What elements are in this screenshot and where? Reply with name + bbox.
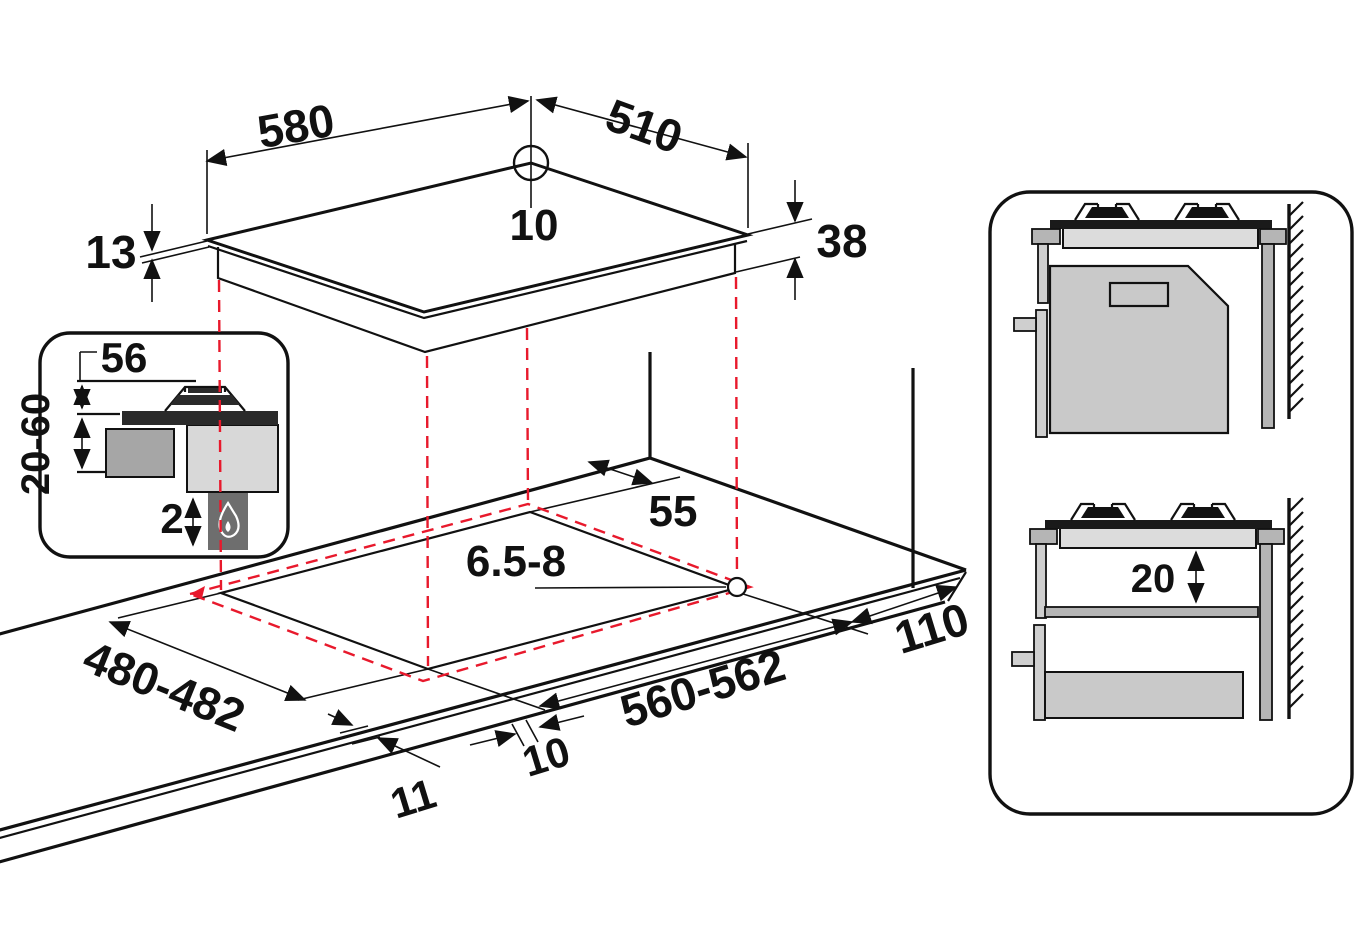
label-cutout-width: 560-562 <box>614 638 791 737</box>
label-grate-height: 56 <box>101 334 148 381</box>
label-corner-hole: 10 <box>510 201 559 250</box>
label-rim-thickness: 13 <box>85 226 136 278</box>
label-front-overhang: 10 <box>517 727 575 786</box>
drawer <box>1045 672 1243 718</box>
label-side-overhang: 11 <box>385 770 441 828</box>
label-body-height: 38 <box>816 215 867 267</box>
label-hob-width: 580 <box>254 94 339 159</box>
label-bottom-clearance: 2 <box>160 495 183 542</box>
label-cutout-depth: 480-482 <box>76 630 252 741</box>
worktop-cross-section <box>106 429 174 477</box>
label-side-clearance: 110 <box>889 592 975 663</box>
shelf <box>1045 607 1258 617</box>
label-worktop-thickness: 20-60 <box>14 393 58 495</box>
label-rear-clearance: 55 <box>649 487 698 536</box>
label-fixing-hole: 6.5-8 <box>466 537 566 586</box>
hob-isometric-view <box>207 163 748 352</box>
hob-body-section <box>187 425 278 492</box>
fixing-hole <box>728 578 746 596</box>
label-hob-depth: 510 <box>599 89 689 164</box>
hob-rim-section <box>122 411 278 425</box>
installation-diagram: 580 510 10 13 38 56 20-60 2 55 6.5-8 480… <box>0 0 1364 951</box>
side-view-shelf: 20 <box>1012 498 1303 720</box>
side-view-panel: 20 <box>990 192 1352 814</box>
oven-vent <box>1110 283 1168 306</box>
diagram-canvas: 580 510 10 13 38 56 20-60 2 55 6.5-8 480… <box>0 0 1364 951</box>
label-shelf-clearance: 20 <box>1131 557 1176 601</box>
